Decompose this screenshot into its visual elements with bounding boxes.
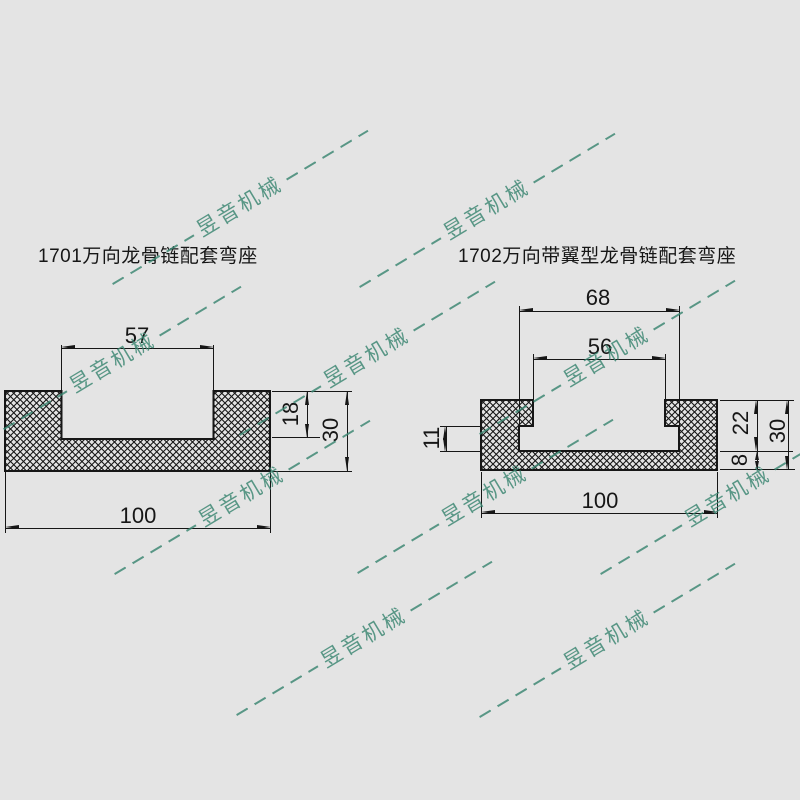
watermark-text: 昱音机械 bbox=[681, 463, 774, 530]
dim-label-overall-height-1702: 30 bbox=[767, 419, 789, 443]
dimension-line bbox=[533, 359, 666, 360]
arrow-right bbox=[200, 345, 214, 349]
extension-line bbox=[665, 354, 666, 400]
extension-line bbox=[272, 391, 352, 392]
extension-line bbox=[61, 345, 62, 391]
dim-label-wall-height-1702: 22 bbox=[730, 411, 752, 435]
watermark-unit: 昱音机械 bbox=[234, 272, 500, 443]
watermark-text: 昱音机械 bbox=[320, 324, 413, 391]
watermark-unit: 昱音机械 bbox=[231, 552, 497, 723]
dimension-line bbox=[61, 348, 214, 349]
watermark-dash-line bbox=[359, 237, 441, 288]
dim-label-base-thickness-1702: 8 bbox=[729, 454, 751, 466]
drawing-1701-title: 1701万向龙骨链配套弯座 bbox=[38, 247, 258, 268]
profile-1701-outline bbox=[5, 391, 270, 471]
arrow-up bbox=[755, 451, 759, 460]
dimension-line bbox=[481, 513, 718, 514]
extension-line bbox=[272, 437, 320, 438]
watermark-text: 昱音机械 bbox=[193, 173, 286, 240]
arrow-right bbox=[257, 525, 271, 529]
profile-1702-outline bbox=[481, 400, 717, 470]
dim-label-slot-width-1702: 56 bbox=[588, 336, 612, 358]
dimension-line bbox=[519, 311, 680, 312]
watermark-dash-line bbox=[159, 285, 241, 336]
dim-label-overall-height-1701: 30 bbox=[320, 418, 342, 442]
watermark-dash-line bbox=[600, 524, 682, 575]
watermark-unit: 昱音机械 bbox=[474, 554, 740, 725]
watermark-text: 昱音机械 bbox=[438, 462, 531, 529]
drawing-canvas: { "canvas": { "background": "#e4e4e4", "… bbox=[0, 0, 800, 800]
arrow-up bbox=[785, 400, 789, 414]
watermark-dash-line bbox=[413, 280, 495, 331]
profile-1701-cross-section bbox=[4, 390, 271, 472]
extension-line bbox=[519, 306, 520, 426]
watermark-text: 昱音机械 bbox=[560, 606, 653, 673]
watermark-dash-line bbox=[653, 562, 735, 613]
arrow-down bbox=[305, 424, 309, 438]
profile-1702-cross-section bbox=[480, 399, 718, 471]
watermark-dash-line bbox=[236, 665, 318, 716]
dimension-line bbox=[5, 528, 271, 529]
watermark-text: 昱音机械 bbox=[440, 176, 533, 243]
watermark-unit: 昱音机械 bbox=[354, 124, 620, 295]
dim-label-overall-width-1701: 100 bbox=[120, 505, 157, 527]
extension-line bbox=[5, 472, 6, 533]
arrow-right bbox=[652, 356, 666, 360]
arrow-left bbox=[5, 525, 19, 529]
arrow-down bbox=[755, 461, 759, 470]
arrow-left bbox=[481, 510, 495, 514]
arrow-left bbox=[533, 356, 547, 360]
watermark-dash-line bbox=[479, 667, 561, 718]
drawing-1702-title: 1702万向带翼型龙骨链配套弯座 bbox=[458, 247, 736, 268]
extension-line bbox=[270, 472, 271, 533]
arrow-right bbox=[666, 308, 680, 312]
watermark-dash-line bbox=[653, 279, 735, 330]
extension-line bbox=[213, 345, 214, 391]
dim-label-overall-width-1702: 100 bbox=[582, 490, 619, 512]
arrow-down bbox=[754, 437, 758, 451]
watermark-dash-line bbox=[357, 523, 439, 574]
arrow-left bbox=[61, 345, 75, 349]
arrow-down bbox=[785, 456, 789, 470]
extension-line bbox=[679, 306, 680, 426]
watermark-dash-line bbox=[286, 129, 368, 180]
arrow-up bbox=[345, 391, 349, 405]
arrow-down bbox=[345, 457, 349, 471]
arrow-up bbox=[305, 391, 309, 405]
arrow-right bbox=[704, 510, 718, 514]
watermark-dash-line bbox=[410, 560, 492, 611]
arrow-up bbox=[754, 400, 758, 414]
watermark-text: 昱音机械 bbox=[317, 604, 410, 671]
extension-line bbox=[533, 354, 534, 400]
dim-label-groove-width-1702: 68 bbox=[586, 287, 610, 309]
dim-label-wing-step-1702: 11 bbox=[421, 427, 443, 450]
dim-label-slot-depth-1701: 18 bbox=[280, 402, 302, 426]
watermark-dash-line bbox=[533, 132, 615, 183]
extension-line bbox=[272, 471, 352, 472]
dim-label-slot-width-1701: 57 bbox=[125, 325, 149, 347]
watermark-dash-line bbox=[114, 524, 196, 575]
watermark-text: 昱音机械 bbox=[195, 463, 288, 530]
arrow-left bbox=[519, 308, 533, 312]
